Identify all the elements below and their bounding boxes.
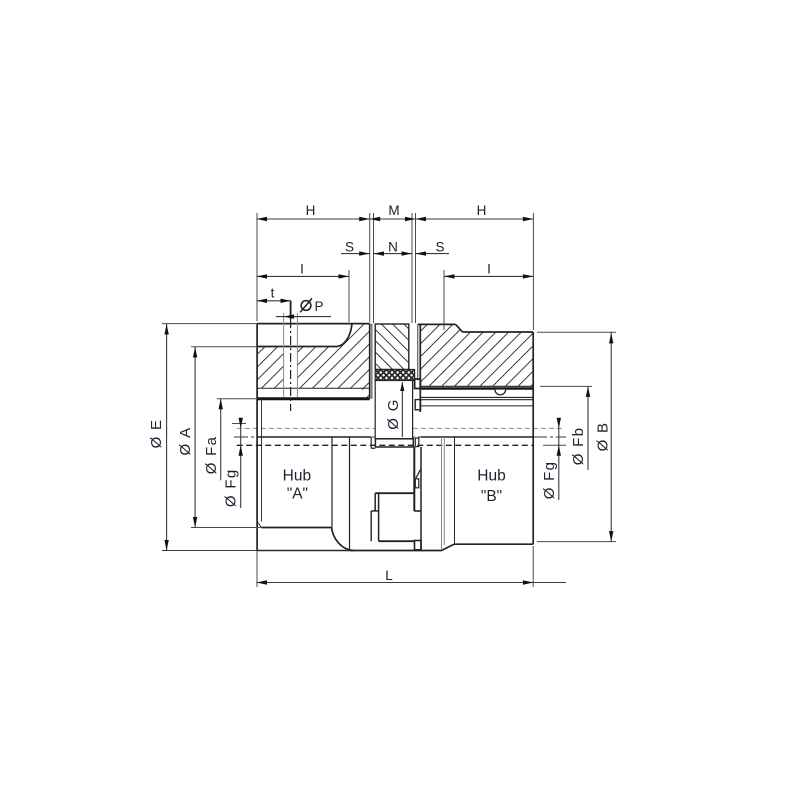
svg-text:Ø Fb: Ø Fb: [570, 427, 587, 466]
svg-text:M: M: [388, 203, 399, 218]
svg-text:N: N: [388, 240, 398, 255]
svg-text:Ø Fa: Ø Fa: [203, 436, 220, 475]
svg-text:Ø E: Ø E: [148, 419, 165, 449]
svg-text:"B": "B": [481, 488, 502, 505]
svg-text:L: L: [385, 568, 393, 583]
svg-text:S: S: [435, 240, 444, 255]
svg-text:Ø B: Ø B: [595, 422, 612, 452]
svg-text:I: I: [300, 262, 304, 277]
svg-text:Ø G: Ø G: [385, 398, 402, 429]
svg-text:Hub: Hub: [283, 468, 311, 485]
svg-text:Ø Fg: Ø Fg: [541, 461, 558, 500]
svg-text:"A": "A": [287, 486, 308, 503]
svg-text:Hub: Hub: [477, 468, 505, 485]
svg-text:Ø Fg: Ø Fg: [223, 469, 240, 508]
svg-text:H: H: [477, 203, 487, 218]
svg-text:H: H: [306, 203, 316, 218]
svg-text:Ø A: Ø A: [177, 427, 194, 456]
svg-text:S: S: [345, 240, 354, 255]
svg-text:t: t: [271, 286, 275, 301]
svg-text:I: I: [487, 262, 491, 277]
svg-text:P: P: [315, 299, 324, 314]
